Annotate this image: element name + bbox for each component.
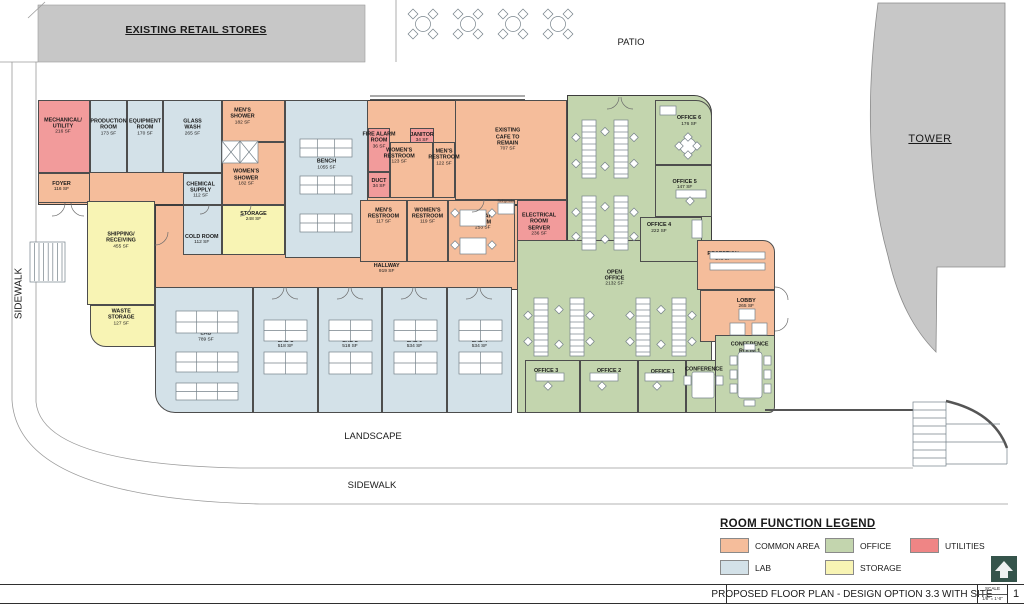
room-label: OFFICE 6176 SF: [677, 115, 701, 127]
room-function-legend: ROOM FUNCTION LEGEND COMMON AREAOFFICEUT…: [720, 518, 1020, 575]
legend-swatch-lab: [720, 560, 749, 575]
room-foyer: FOYER116 SF: [38, 173, 90, 203]
room-break-room: BREAK ROOM253 SF: [448, 200, 515, 262]
landscape-label: LANDSCAPE: [323, 431, 423, 442]
room-chemical-lab: CHEMICAL LAB789 SF: [155, 287, 253, 413]
room-womens-restroom-1: WOMEN'S RESTROOM119 SF: [407, 200, 448, 262]
refrigerator-label: Refrigerator: [494, 199, 518, 203]
legend-item-lab: LAB: [720, 560, 825, 575]
room-label: CONFERENCE ROOM 1213 SF: [731, 342, 769, 361]
room-mens-shower: MEN'S SHOWER182 SF: [222, 100, 285, 142]
room-lab-2: LAB 2518 SF: [318, 287, 382, 413]
legend-item-office: OFFICE: [825, 538, 910, 553]
room-label: JANITOR34 SF: [410, 132, 434, 144]
legend-item-storage: STORAGE: [825, 560, 910, 575]
room-mechanical-utility: MECHANICAL/ UTILITY216 SF: [38, 100, 90, 173]
room-label: LAB 4534 SF: [472, 338, 488, 350]
room-label: LOBBY265 SF: [737, 297, 756, 309]
room-label: WASTE STORAGE127 SF: [108, 309, 135, 328]
room-label: PRODUCTION ROOM173 SF: [90, 119, 126, 138]
room-label: CHEMICAL SUPPLY112 SF: [186, 181, 214, 200]
room-mens-restroom-2: MEN'S RESTROOM122 SF: [433, 142, 455, 198]
legend-swatch-utilities: [910, 538, 939, 553]
room-label: ELECTRICAL ROOM/ SERVER236 SF: [522, 212, 556, 237]
room-label: COLD ROOM112 SF: [185, 233, 219, 245]
room-label: MEN'S SHOWER182 SF: [230, 108, 254, 127]
room-lab-4: LAB 4534 SF: [447, 287, 512, 413]
room-lab-1: LAB 1518 SF: [253, 287, 318, 413]
room-waste-storage: WASTE STORAGE127 SF: [90, 305, 155, 347]
room-label: OFFICE 3199 SF: [534, 368, 558, 380]
legend-label: STORAGE: [860, 563, 901, 573]
legend-label: OFFICE: [860, 541, 891, 551]
sidewalk-left-label: SIDEWALK: [14, 249, 25, 339]
room-label: DUCT34 SF: [372, 178, 387, 190]
room-label: CHEMICAL LAB789 SF: [192, 325, 220, 344]
room-mens-restroom-1: MEN'S RESTROOM117 SF: [360, 200, 407, 262]
floor-plan-canvas: EXISTING RETAIL STORES PATIO TOWER SIDEW…: [0, 0, 1024, 605]
room-label: EQUIPMENT ROOM170 SF: [129, 119, 161, 138]
rooms-layer: MECHANICAL/ UTILITY216 SFPRODUCTION ROOM…: [0, 0, 1024, 605]
room-label: FOYER116 SF: [52, 180, 71, 192]
room-existing-cafe: EXISTING CAFE TO REMAIN707 SF: [455, 100, 567, 200]
room-office-1: OFFICE 1141 SF: [638, 360, 686, 413]
room-label: MEN'S RESTROOM117 SF: [368, 207, 399, 226]
room-label: OFFICE 5147 SF: [672, 179, 696, 191]
title-bar: PROPOSED FLOOR PLAN - DESIGN OPTION 3.3 …: [0, 584, 1024, 604]
room-equipment-room: EQUIPMENT ROOM170 SF: [127, 100, 163, 173]
room-label: CONFERENCE ROOM 2122 SF: [685, 367, 723, 386]
room-reception: RECEPTION248 SF: [697, 240, 775, 290]
room-womens-restroom-2: WOMEN'S RESTROOM123 SF: [390, 142, 433, 198]
room-label: RECEPTION248 SF: [707, 251, 738, 263]
room-label: OPEN LAB BENCH1055 SF: [313, 152, 341, 171]
patio-label: PATIO: [601, 37, 661, 48]
room-office-2: OFFICE 2197 SF: [580, 360, 638, 413]
room-cold-room: COLD ROOM112 SF: [183, 205, 222, 255]
room-label: GLASS WASH265 SF: [183, 119, 202, 138]
legend-label: UTILITIES: [945, 541, 985, 551]
legend-label: LAB: [755, 563, 771, 573]
room-office-6: OFFICE 6176 SF: [655, 100, 712, 165]
legend-swatch-storage: [825, 560, 854, 575]
scale-value: 1/8" = 1'-0": [978, 595, 1007, 604]
room-label: EXISTING CAFE TO REMAIN707 SF: [495, 128, 520, 153]
room-label: LAB 2518 SF: [342, 338, 358, 350]
room-office-4: OFFICE 4222 SF: [640, 217, 702, 262]
sidewalk-bottom-label: SIDEWALK: [322, 480, 422, 491]
room-chemical-supply: CHEMICAL SUPPLY112 SF: [183, 173, 222, 205]
tower-label: TOWER: [880, 133, 980, 145]
sheet-number: 1: [1008, 585, 1024, 603]
room-label: STORAGE248 SF: [240, 210, 267, 222]
room-duct: DUCT34 SF: [368, 172, 390, 198]
room-conference-room-1: CONFERENCE ROOM 1213 SF: [715, 335, 775, 413]
room-label: OPEN OFFICE2132 SF: [605, 269, 625, 288]
room-womens-shower: WOMEN'S SHOWER182 SF: [222, 142, 285, 205]
room-lab-3: LAB 3534 SF: [382, 287, 447, 413]
room-label: MECHANICAL/ UTILITY216 SF: [44, 117, 82, 136]
legend-title: ROOM FUNCTION LEGEND: [720, 518, 1020, 530]
room-label: WOMEN'S SHOWER182 SF: [233, 169, 259, 188]
room-label: LAB 1518 SF: [278, 338, 294, 350]
legend-swatch-office: [825, 538, 854, 553]
sheet-title: PROPOSED FLOOR PLAN - DESIGN OPTION 3.3 …: [726, 585, 978, 603]
room-hallway: HALLWAY919 SF: [155, 255, 517, 290]
room-label: OFFICE 4222 SF: [647, 222, 671, 234]
retail-stores-label: EXISTING RETAIL STORES: [58, 24, 334, 36]
scale-box: SCALE 1/8" = 1'-0": [978, 585, 1008, 603]
legend-items: COMMON AREAOFFICEUTILITIESLABSTORAGE: [720, 538, 1020, 575]
room-production-room: PRODUCTION ROOM173 SF: [90, 100, 127, 173]
legend-label: COMMON AREA: [755, 541, 820, 551]
room-label: WOMEN'S RESTROOM123 SF: [384, 147, 415, 166]
room-label: LAB 3534 SF: [407, 338, 423, 350]
scale-label: SCALE: [978, 585, 1007, 595]
room-label: BREAK ROOM253 SF: [473, 213, 492, 232]
legend-item-common: COMMON AREA: [720, 538, 825, 553]
legend-swatch-common: [720, 538, 749, 553]
room-label: OFFICE 2197 SF: [597, 368, 621, 380]
room-shipping-receiving: SHIPPING/ RECEIVING455 SF: [87, 201, 155, 305]
room-office-3: OFFICE 3199 SF: [525, 360, 580, 413]
legend-item-utilities: UTILITIES: [910, 538, 1015, 553]
room-open-lab-bench: OPEN LAB BENCH1055 SF: [285, 100, 368, 258]
room-label: HALLWAY919 SF: [374, 263, 400, 275]
room-label: WOMEN'S RESTROOM119 SF: [412, 207, 443, 226]
room-label: SHIPPING/ RECEIVING455 SF: [106, 231, 136, 250]
room-label: OFFICE 1141 SF: [651, 369, 675, 381]
firm-logo: [991, 556, 1017, 582]
room-storage: STORAGE248 SF: [222, 205, 285, 255]
room-glass-wash: GLASS WASH265 SF: [163, 100, 222, 173]
room-label: MEN'S RESTROOM122 SF: [428, 149, 459, 168]
room-office-5: OFFICE 5147 SF: [655, 165, 712, 217]
